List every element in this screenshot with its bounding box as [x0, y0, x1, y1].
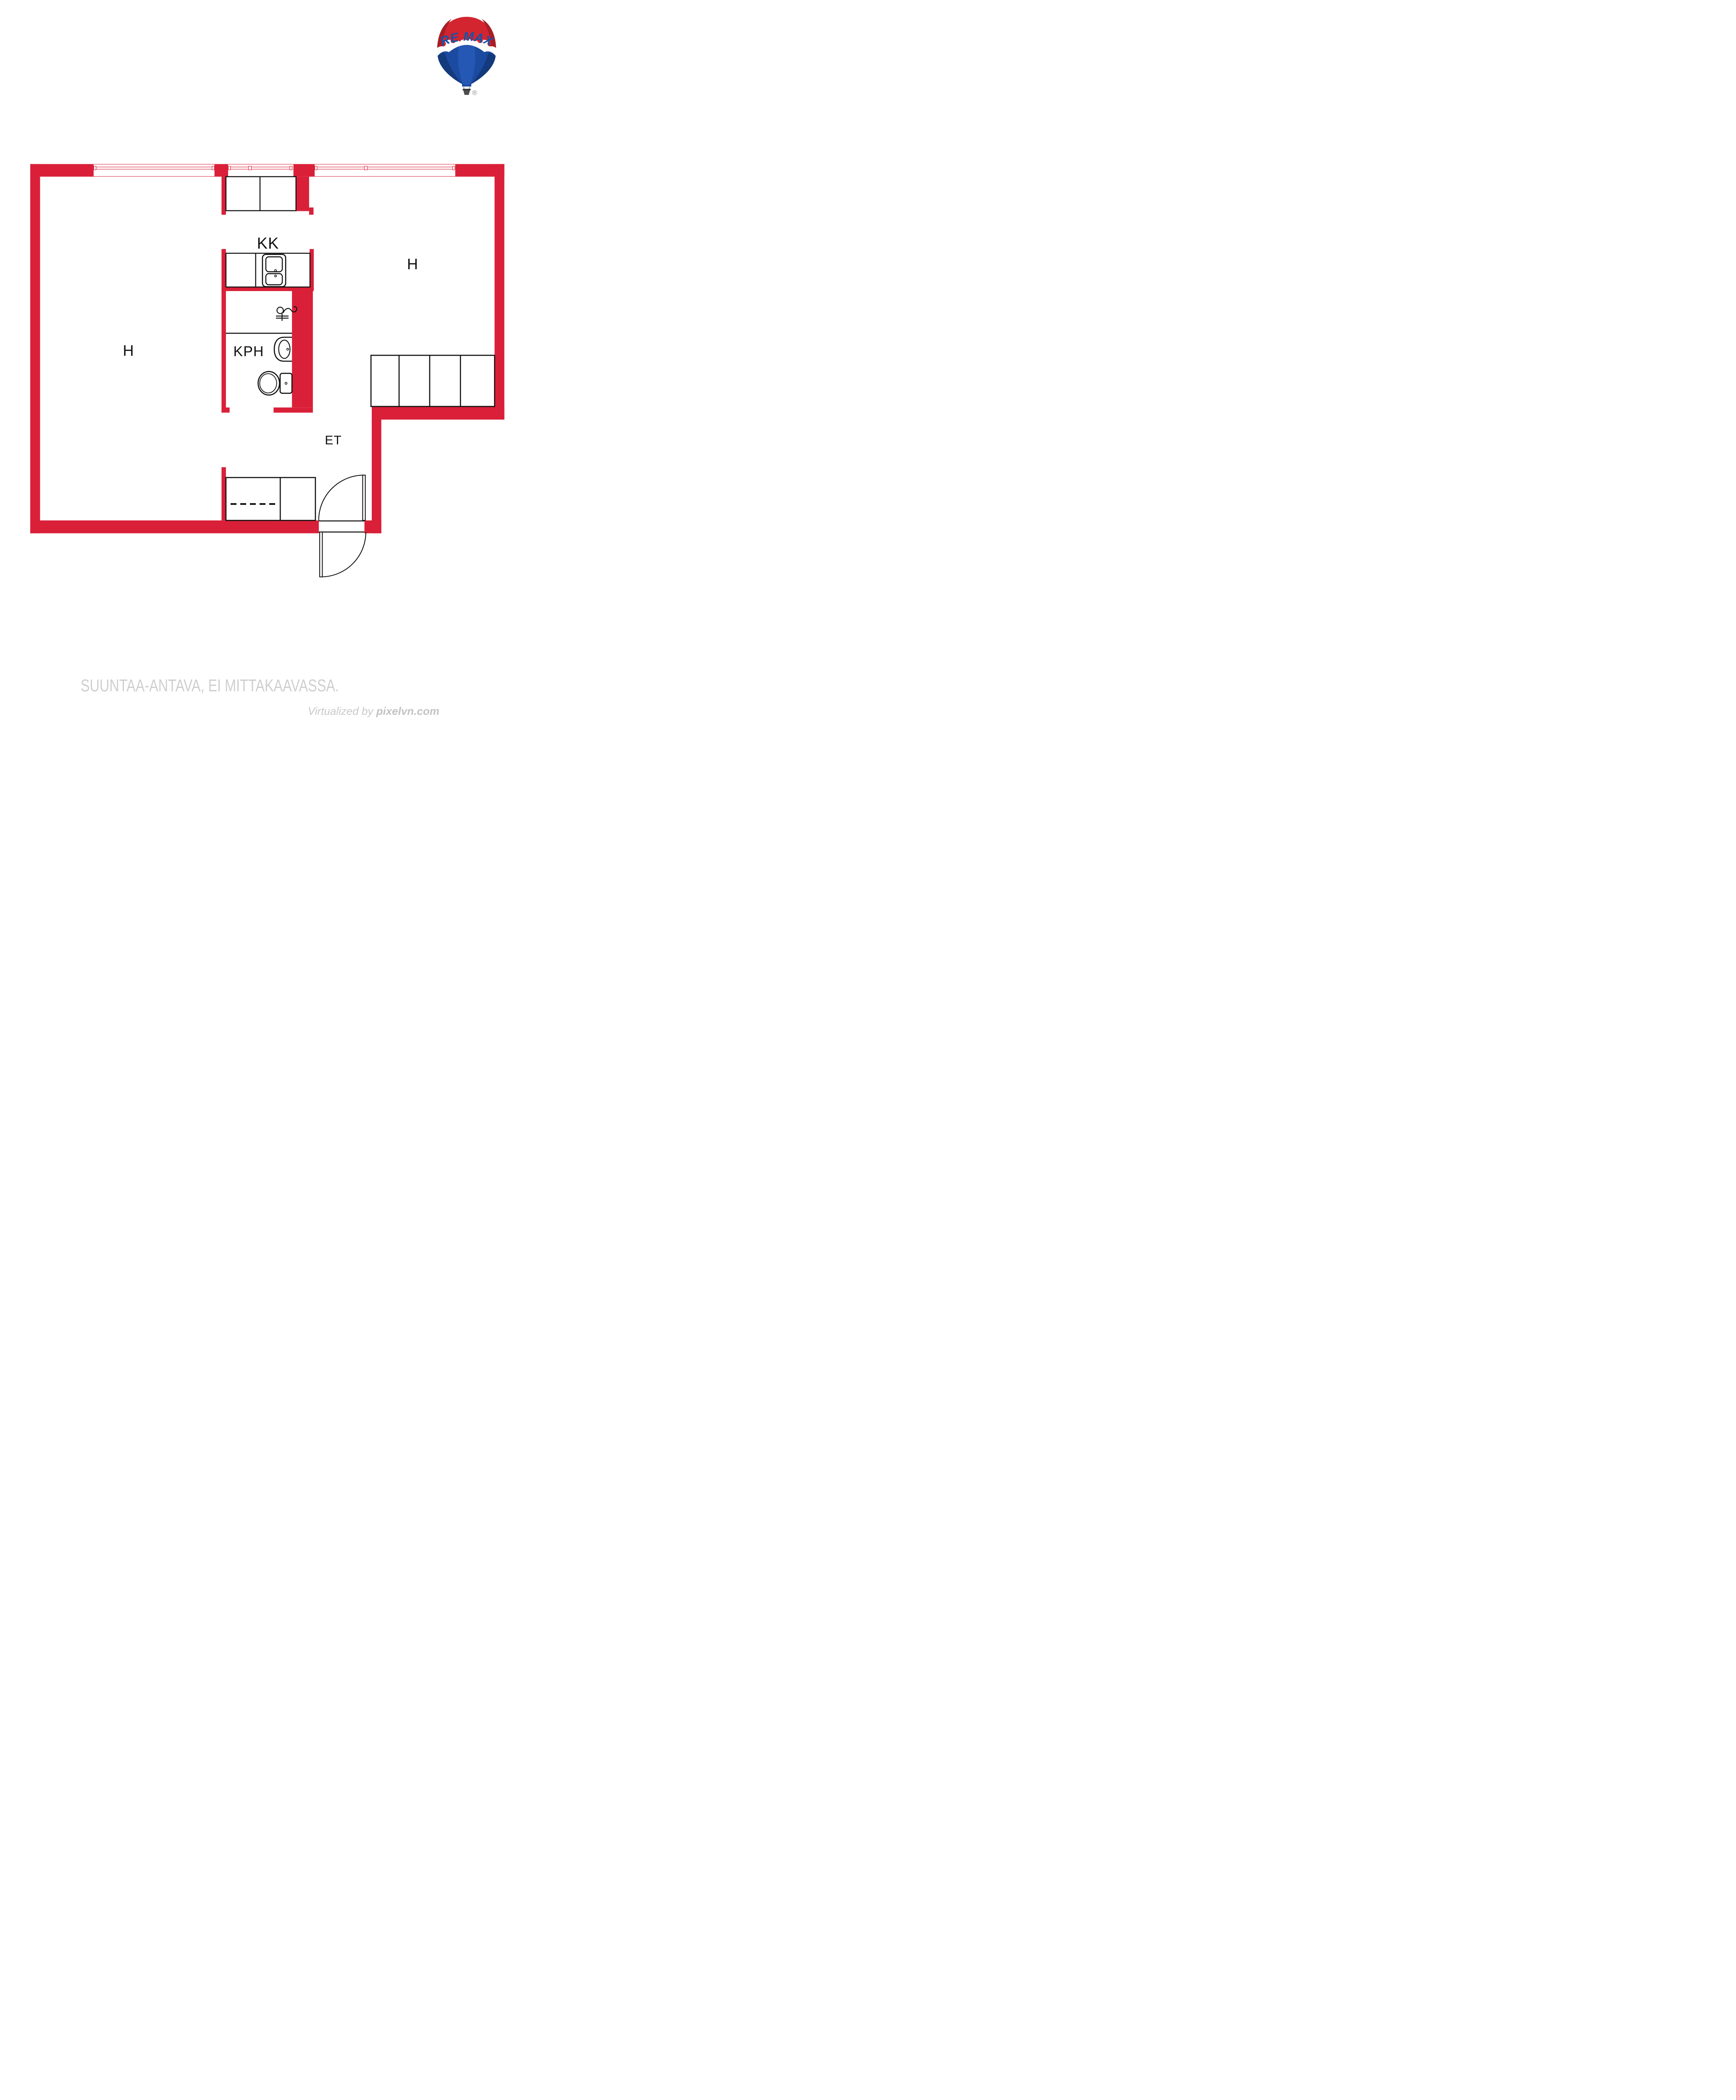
wall-bottom-right-step	[372, 407, 504, 420]
wall-closet-nook-right	[296, 177, 309, 211]
floorplan-document: RE/MAX ®	[0, 0, 521, 737]
wall-bath-foot-right	[273, 407, 313, 412]
footer: SUUNTAA-ANTAVA, EI MITTAKAAVASSA. Virtua…	[81, 676, 439, 717]
remax-balloon-logo: RE/MAX ®	[437, 17, 496, 97]
window-mullion	[365, 166, 368, 170]
wall-closet-nook-right-stub	[309, 207, 314, 215]
label-bathroom: KPH	[234, 344, 264, 360]
top-closet	[226, 177, 296, 211]
window-left	[94, 165, 215, 176]
washbasin-icon	[274, 337, 292, 361]
label-entry-hall: ET	[325, 433, 341, 447]
window-middle	[228, 165, 294, 176]
entry-door	[319, 475, 366, 577]
credit-text: Virtualized by pixelvn.com	[308, 705, 439, 717]
door-swing-arc-inner	[319, 475, 364, 520]
wall-et-right	[372, 420, 381, 533]
kitchen-sink-icon	[263, 255, 286, 287]
registered-mark: ®	[472, 89, 477, 97]
wall-bath-right-block	[292, 291, 313, 407]
floor-plan: H H KK KPH ET	[30, 164, 504, 577]
disclaimer-text: SUUNTAA-ANTAVA, EI MITTAKAAVASSA.	[81, 676, 339, 695]
label-kitchenette: KK	[257, 235, 279, 252]
window-right	[315, 165, 455, 176]
wall-left	[30, 164, 40, 533]
wall-kitchen-bath-left	[221, 249, 226, 413]
wall-right	[494, 164, 504, 420]
kitchen-counter	[226, 253, 310, 287]
wardrobe	[226, 478, 315, 520]
basket-rim	[463, 89, 471, 91]
label-room-h-left: H	[123, 342, 134, 359]
credit-prefix: Virtualized by	[308, 705, 376, 717]
door-opening	[319, 520, 365, 533]
windows	[94, 165, 455, 176]
credit-site: pixelvn.com	[376, 705, 439, 717]
wall-closet-nook-left	[221, 177, 226, 215]
door-swing-arc-outer	[321, 532, 366, 577]
balloon-basket	[463, 90, 470, 95]
window-mullion	[249, 166, 252, 170]
closet-row	[371, 355, 494, 407]
toilet-icon	[258, 372, 292, 395]
wall-below-counter	[221, 287, 310, 291]
door-leaf-outer	[320, 532, 322, 577]
door-leaf-inner	[362, 475, 365, 520]
label-room-h-right: H	[407, 255, 418, 273]
wall-wardrobe-left-stub	[221, 467, 226, 520]
wall-bath-foot-left	[221, 407, 229, 412]
page: RE/MAX ®	[0, 0, 521, 737]
